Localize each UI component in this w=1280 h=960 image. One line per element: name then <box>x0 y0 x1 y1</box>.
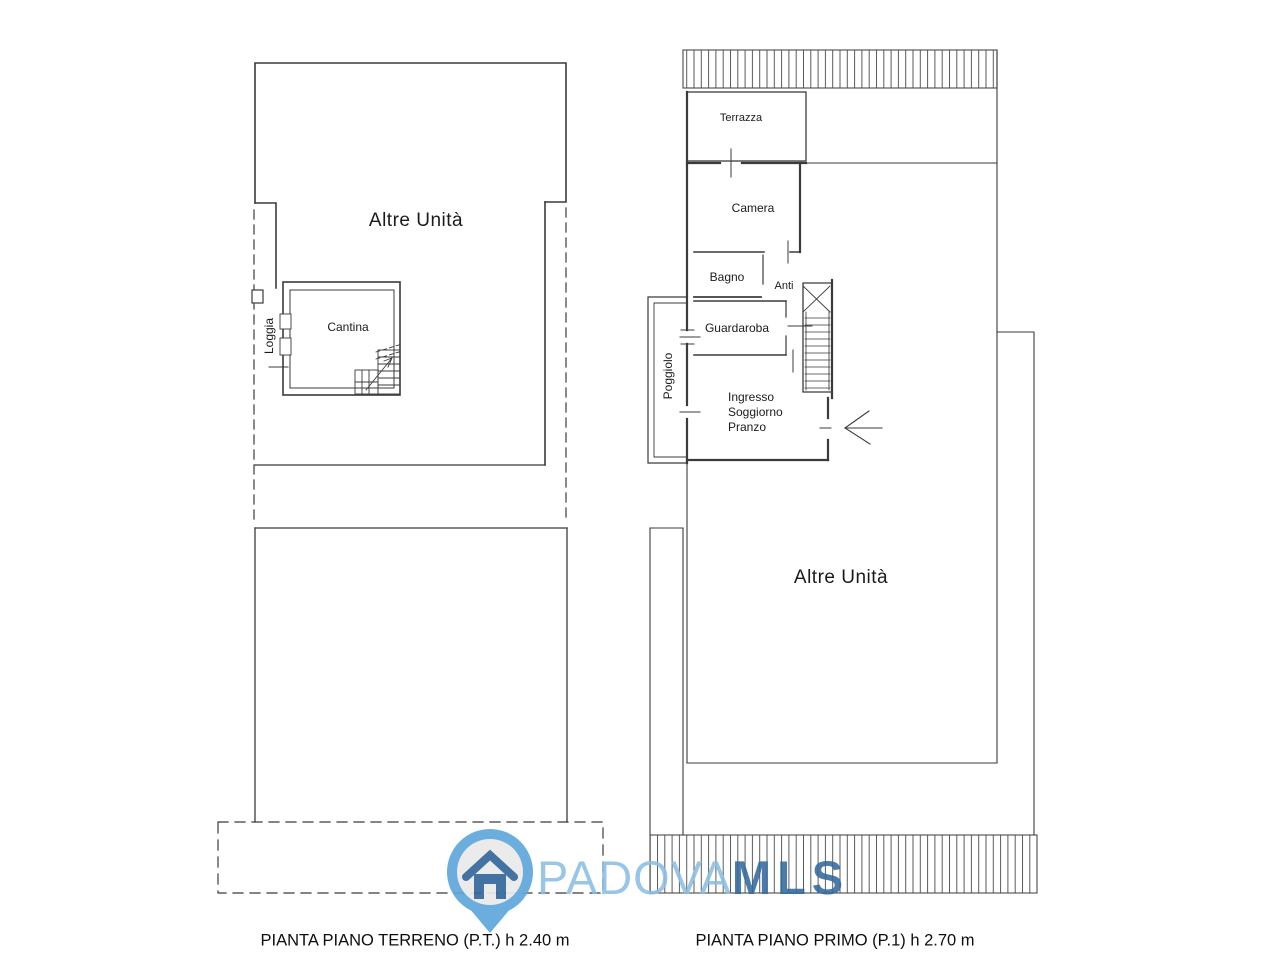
ground-floor-plan <box>218 63 603 893</box>
first-floor-guardaroba-label: Guardaroba <box>705 321 769 335</box>
first-floor-soggiorno-label: Ingresso Soggiorno Pranzo <box>728 390 783 435</box>
entrance-arrow-icon <box>845 411 882 444</box>
first-floor-altre-unita-label: Altre Unità <box>794 567 888 589</box>
first-floor-camera-label: Camera <box>732 201 775 215</box>
soggiorno-label-line1: Ingresso <box>728 390 783 405</box>
ground-floor-caption: PIANTA PIANO TERRENO (P.T.) h 2.40 m <box>260 932 569 951</box>
ground-floor-stairs-icon <box>355 344 402 394</box>
ground-floor-cantina-label: Cantina <box>327 320 368 334</box>
first-floor-anti-label: Anti <box>775 280 794 292</box>
first-floor-terrazza-label: Terrazza <box>720 112 762 124</box>
padovamls-pin-house-icon <box>447 829 533 933</box>
ground-floor-altre-unita-label: Altre Unità <box>369 210 463 232</box>
ground-floor-loggia-label: Loggia <box>262 318 276 354</box>
floor-plan-drawing <box>0 0 1280 960</box>
first-floor-poggiolo-label: Poggiolo <box>661 353 675 400</box>
watermark-padova-text: PADOVA <box>537 850 732 905</box>
soggiorno-label-line2: Soggiorno <box>728 405 783 420</box>
soggiorno-label-line3: Pranzo <box>728 420 783 435</box>
first-floor-bagno-label: Bagno <box>710 270 745 284</box>
first-floor-plan <box>648 50 1037 893</box>
first-floor-caption: PIANTA PIANO PRIMO (P.1) h 2.70 m <box>695 932 974 951</box>
first-floor-stairs-icon <box>793 280 832 398</box>
floorplan-page: Altre Unità Loggia Cantina Terrazza Came… <box>0 0 1280 960</box>
watermark-mls-text: MLS <box>732 850 849 905</box>
roof-hatch-top <box>683 50 997 88</box>
padovamls-watermark: PADOVAMLS <box>537 850 849 905</box>
